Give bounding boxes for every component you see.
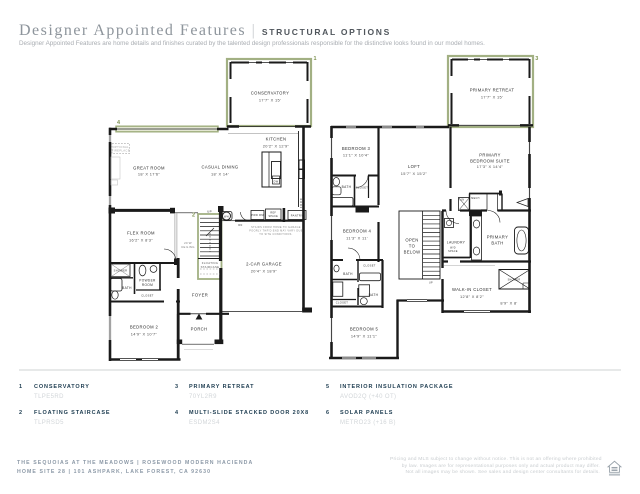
svg-text:17'7" X 15': 17'7" X 15' — [259, 98, 281, 103]
svg-text:BEDROOM 3: BEDROOM 3 — [342, 146, 371, 151]
svg-text:PRIMARY RETREAT: PRIMARY RETREAT — [470, 88, 515, 93]
svg-text:BATH: BATH — [343, 272, 353, 276]
svg-text:2: 2 — [192, 213, 195, 219]
svg-text:BEDROOM 5: BEDROOM 5 — [350, 327, 379, 332]
svg-text:BELOW: BELOW — [404, 250, 421, 255]
svg-text:18' X 14': 18' X 14' — [211, 172, 229, 177]
svg-text:SPACE: SPACE — [448, 250, 458, 253]
svg-text:TO SITE CONDITIONS.: TO SITE CONDITIONS. — [259, 233, 292, 236]
svg-text:17'3" X 14'4": 17'3" X 14'4" — [477, 164, 504, 169]
svg-text:WH: WH — [224, 214, 229, 218]
svg-text:15'7" X 15'2": 15'7" X 15'2" — [401, 171, 428, 176]
svg-text:CASUAL DINING: CASUAL DINING — [202, 165, 239, 170]
svg-text:2-CAR GARAGE: 2-CAR GARAGE — [246, 262, 282, 267]
svg-text:WALK-IN CLOSET: WALK-IN CLOSET — [452, 287, 492, 292]
svg-text:PANTRY: PANTRY — [291, 213, 303, 217]
svg-text:MECH: MECH — [471, 197, 479, 200]
svg-text:CLOSET: CLOSET — [363, 264, 376, 268]
svg-text:ROOM: ROOM — [142, 283, 153, 287]
svg-text:CLOSET: CLOSET — [356, 185, 369, 189]
svg-text:11'1" X 10'4": 11'1" X 10'4" — [343, 153, 370, 158]
svg-text:FOYER: FOYER — [192, 293, 208, 298]
svg-text:TO: TO — [409, 244, 416, 249]
svg-text:BEDROOM 4: BEDROOM 4 — [343, 229, 372, 234]
svg-text:BATH: BATH — [369, 293, 379, 297]
svg-text:SHOWER: SHOWER — [508, 279, 521, 282]
svg-text:20'4" X 18'9": 20'4" X 18'9" — [251, 269, 278, 274]
svg-text:17'7" X 15': 17'7" X 15' — [481, 95, 503, 100]
svg-text:DW: DW — [274, 181, 279, 184]
svg-text:SPACE: SPACE — [268, 215, 278, 218]
svg-text:FIREPLACE: FIREPLACE — [112, 149, 130, 153]
svg-text:DN: DN — [238, 224, 242, 227]
svg-text:12'8" X 8'2": 12'8" X 8'2" — [460, 294, 484, 299]
svg-text:BEDROOM SUITE: BEDROOM SUITE — [470, 158, 510, 163]
svg-text:PRIMARY: PRIMARY — [487, 235, 508, 240]
svg-text:16'2" X 8'3": 16'2" X 8'3" — [129, 238, 153, 243]
svg-text:CEILING: CEILING — [181, 245, 195, 249]
svg-text:CLOSET: CLOSET — [336, 300, 349, 304]
svg-text:BEDROOM 2: BEDROOM 2 — [130, 325, 159, 330]
svg-text:POWDER: POWDER — [139, 279, 156, 283]
svg-text:PWD RM: PWD RM — [251, 214, 264, 217]
svg-text:CONSERVATORY: CONSERVATORY — [251, 91, 290, 96]
svg-text:11'3" X 11': 11'3" X 11' — [346, 236, 368, 241]
svg-text:14'9" X 11'1": 14'9" X 11'1" — [351, 334, 378, 339]
svg-text:GREAT ROOM: GREAT ROOM — [133, 165, 165, 170]
svg-text:UP: UP — [207, 210, 212, 214]
svg-text:OPTIONAL: OPTIONAL — [113, 145, 130, 149]
svg-text:3: 3 — [535, 56, 538, 62]
svg-text:18' X 17'6": 18' X 17'6" — [138, 171, 161, 176]
svg-text:PORCH: PORCH — [191, 327, 208, 332]
svg-text:20'2" X 12'9": 20'2" X 12'9" — [263, 144, 290, 149]
svg-text:KITCHEN: KITCHEN — [266, 137, 287, 142]
svg-text:OPEN: OPEN — [405, 238, 418, 243]
svg-text:BATH: BATH — [122, 286, 132, 290]
svg-text:LIN: LIN — [460, 199, 465, 202]
svg-text:CLOSET: CLOSET — [141, 294, 154, 298]
svg-text:4: 4 — [117, 120, 121, 126]
svg-text:BATH: BATH — [491, 241, 503, 246]
svg-text:UP: UP — [429, 282, 433, 285]
svg-text:FLEX ROOM: FLEX ROOM — [127, 231, 155, 236]
svg-text:BATH: BATH — [342, 185, 352, 189]
svg-text:STAIRCASE: STAIRCASE — [201, 265, 220, 269]
svg-text:LOFT: LOFT — [408, 164, 420, 169]
svg-text:SHOWER: SHOWER — [114, 269, 128, 273]
svg-text:PRIMARY: PRIMARY — [479, 153, 500, 158]
svg-text:LAUNDRY: LAUNDRY — [447, 241, 466, 245]
svg-text:1: 1 — [313, 56, 316, 62]
svg-text:8'9" X 8': 8'9" X 8' — [500, 301, 517, 306]
svg-text:14'9" X 10'7": 14'9" X 10'7" — [131, 332, 158, 337]
